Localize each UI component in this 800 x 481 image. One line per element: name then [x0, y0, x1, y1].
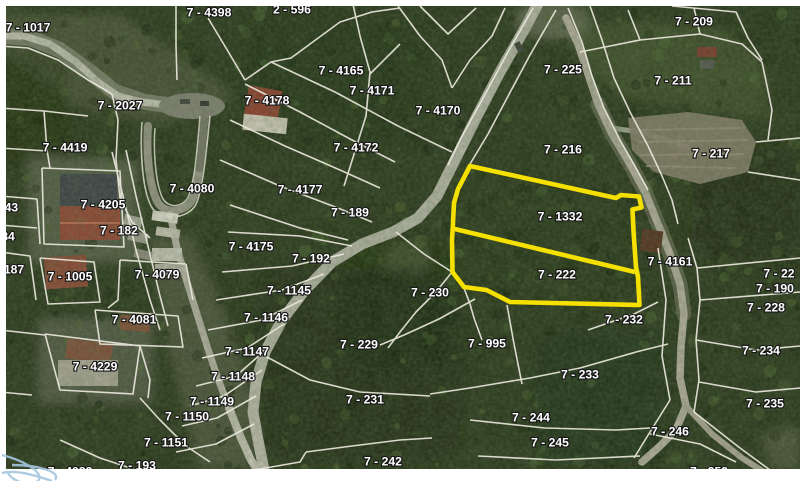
svg-text:7 - 234: 7 - 234 — [742, 344, 780, 358]
svg-text:7 - 225: 7 - 225 — [544, 63, 582, 77]
svg-text:7 - 4172: 7 - 4172 — [334, 141, 379, 155]
svg-text:7 - 217: 7 - 217 — [692, 147, 730, 161]
svg-text:7 - 1017: 7 - 1017 — [6, 21, 51, 35]
svg-text:7 - 22: 7 - 22 — [763, 267, 794, 281]
svg-text:7 - 192: 7 - 192 — [292, 252, 330, 266]
svg-text:7 - 209: 7 - 209 — [675, 15, 713, 29]
svg-text:7 - 216: 7 - 216 — [544, 143, 582, 157]
svg-text:7 - 1332: 7 - 1332 — [538, 210, 583, 224]
svg-text:7 - 4170: 7 - 4170 — [416, 104, 461, 118]
svg-text:7 - 4229: 7 - 4229 — [73, 360, 118, 374]
svg-text:7 - 995: 7 - 995 — [468, 337, 506, 351]
svg-text:7 - 190: 7 - 190 — [756, 282, 794, 296]
svg-text:7 - 4175: 7 - 4175 — [229, 240, 274, 254]
svg-text:7 - 2027: 7 - 2027 — [98, 99, 143, 113]
svg-text:7 - 1148: 7 - 1148 — [211, 370, 255, 384]
svg-text:7 - 211: 7 - 211 — [654, 74, 691, 88]
svg-text:7 - 1005: 7 - 1005 — [48, 270, 93, 284]
svg-text:7 - 1151: 7 - 1151 — [144, 436, 188, 450]
svg-text:7 - 4080: 7 - 4080 — [170, 182, 215, 196]
svg-text:7 - 4081: 7 - 4081 — [112, 313, 157, 327]
svg-text:7 - 4079: 7 - 4079 — [135, 268, 180, 282]
svg-text:7 - 244: 7 - 244 — [512, 411, 550, 425]
svg-text:7 - 242: 7 - 242 — [364, 455, 402, 469]
svg-text:7 - 246: 7 - 246 — [651, 425, 689, 439]
svg-text:7 - 4398: 7 - 4398 — [187, 6, 232, 20]
svg-text:7 - 245: 7 - 245 — [531, 436, 569, 450]
svg-text:7 - 233: 7 - 233 — [561, 368, 599, 382]
svg-text:7 - 228: 7 - 228 — [747, 301, 785, 315]
svg-text:7 - 4161: 7 - 4161 — [648, 255, 693, 269]
svg-text:7 - 4177: 7 - 4177 — [278, 183, 323, 197]
svg-text:7 - 1146: 7 - 1146 — [244, 311, 288, 325]
svg-text:7 - 182: 7 - 182 — [100, 224, 138, 238]
svg-text:7 - 4165: 7 - 4165 — [319, 64, 364, 78]
svg-text:7 - 1147: 7 - 1147 — [225, 345, 269, 359]
svg-text:7 - 189: 7 - 189 — [331, 206, 369, 220]
svg-text:7 - 4178: 7 - 4178 — [245, 94, 290, 108]
svg-text:7 - 1150: 7 - 1150 — [165, 410, 209, 424]
svg-text:7 - 1145: 7 - 1145 — [267, 284, 311, 298]
svg-text:7 - 4205: 7 - 4205 — [81, 198, 126, 212]
svg-text:7 - 1149: 7 - 1149 — [190, 395, 234, 409]
svg-text:7 - 229: 7 - 229 — [340, 338, 378, 352]
svg-text:7 - 4419: 7 - 4419 — [43, 141, 88, 155]
svg-text:7 - 235: 7 - 235 — [746, 397, 784, 411]
svg-text:187: 187 — [4, 263, 25, 277]
svg-text:7 - 4171: 7 - 4171 — [350, 84, 395, 98]
svg-text:7 - 232: 7 - 232 — [605, 313, 643, 327]
svg-text:7 - 222: 7 - 222 — [538, 268, 576, 282]
svg-text:7 - 230: 7 - 230 — [411, 286, 449, 300]
svg-text:7 - 231: 7 - 231 — [346, 393, 384, 407]
